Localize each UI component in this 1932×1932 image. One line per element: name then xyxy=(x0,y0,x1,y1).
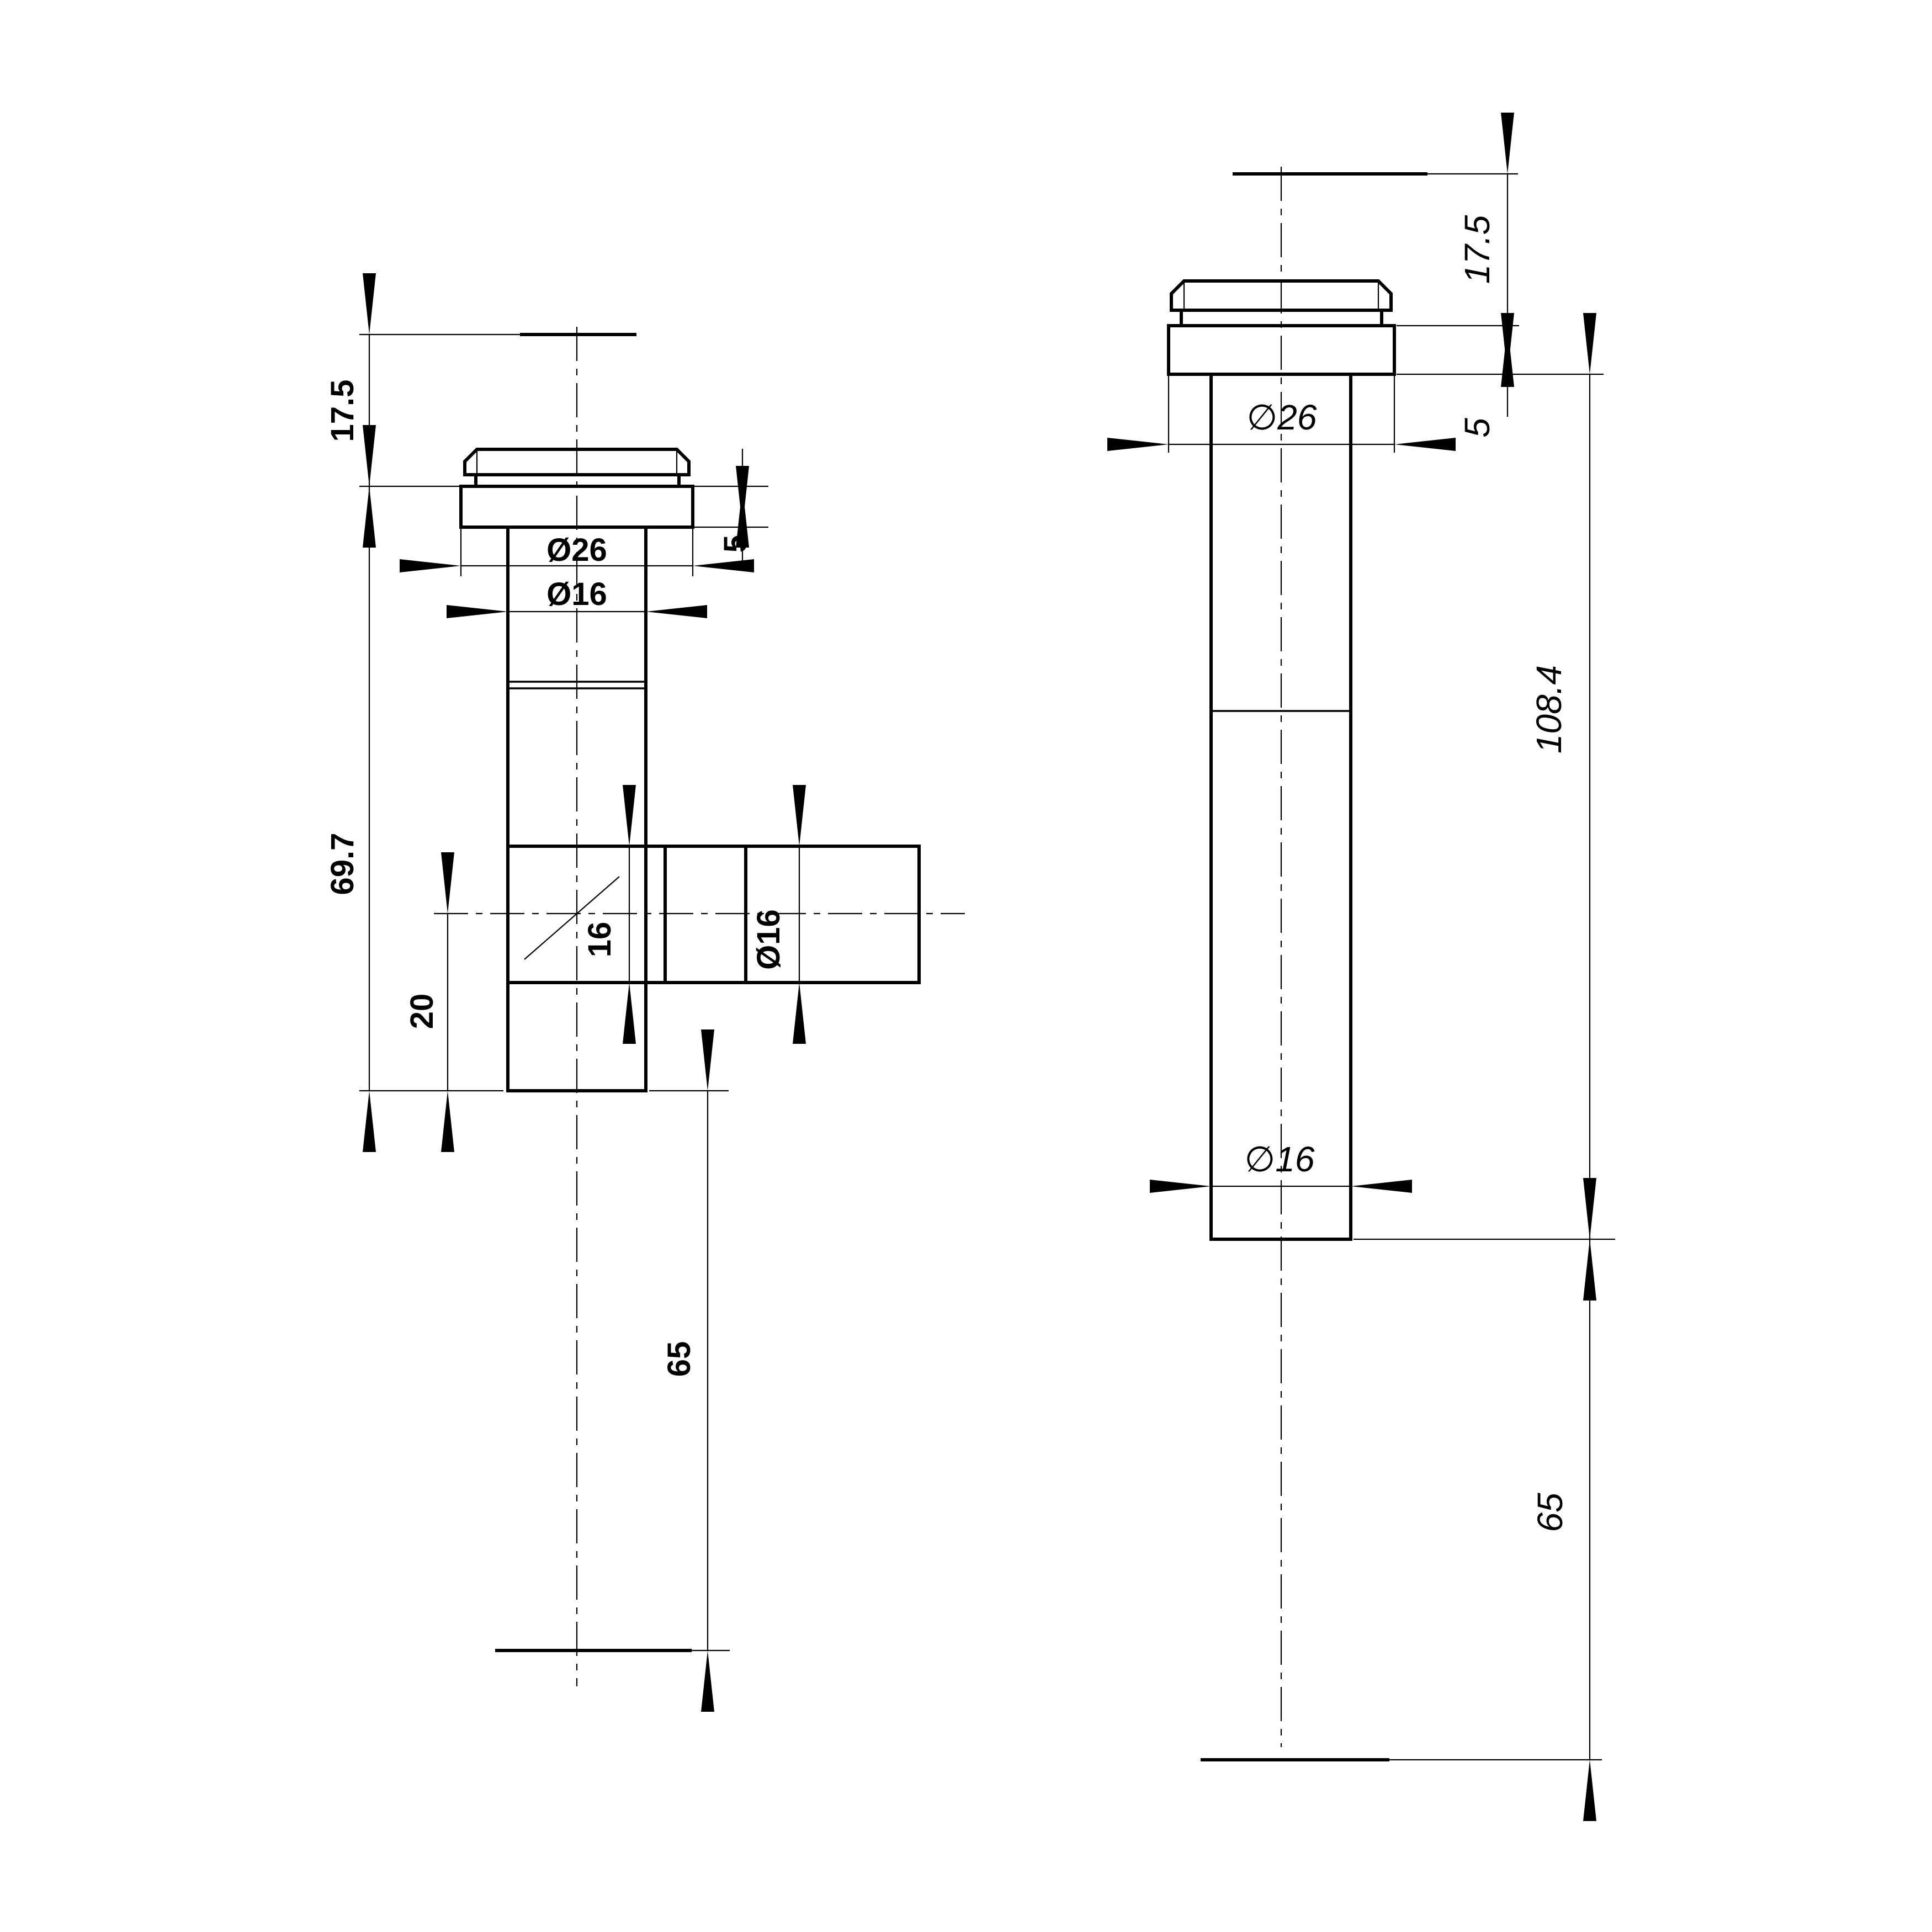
dim-label-flange-height: 5 xyxy=(718,535,753,553)
dim-label-flange-height: 5 xyxy=(1457,418,1497,438)
dim-label-top-offset: 17.5 xyxy=(325,380,360,442)
dim-label-branch-dia: Ø16 xyxy=(751,909,787,970)
dim-label-outlet-to-end: 20 xyxy=(404,994,440,1029)
dim-label-body-length: 108.4 xyxy=(1529,665,1569,753)
dim-label-tail-length: 65 xyxy=(661,1341,697,1377)
technical-drawing-canvas: 17.5 69.7 20 16 Ø16 Ø26 Ø16 5 65 xyxy=(0,0,1932,1932)
dim-label-flange-dia: ∅26 xyxy=(1247,397,1317,437)
dim-label-tail-length: 65 xyxy=(1530,1493,1570,1532)
dim-label-tube-dia: ∅16 xyxy=(1245,1139,1315,1179)
sheet-background xyxy=(0,0,1932,1932)
dim-label-tube-dia: Ø16 xyxy=(546,576,607,612)
dim-label-overall-length: 69.7 xyxy=(325,833,360,895)
dim-label-flange-dia: Ø26 xyxy=(546,532,607,568)
dim-label-branch-width: 16 xyxy=(582,922,618,958)
dim-label-top-offset: 17.5 xyxy=(1457,215,1497,284)
